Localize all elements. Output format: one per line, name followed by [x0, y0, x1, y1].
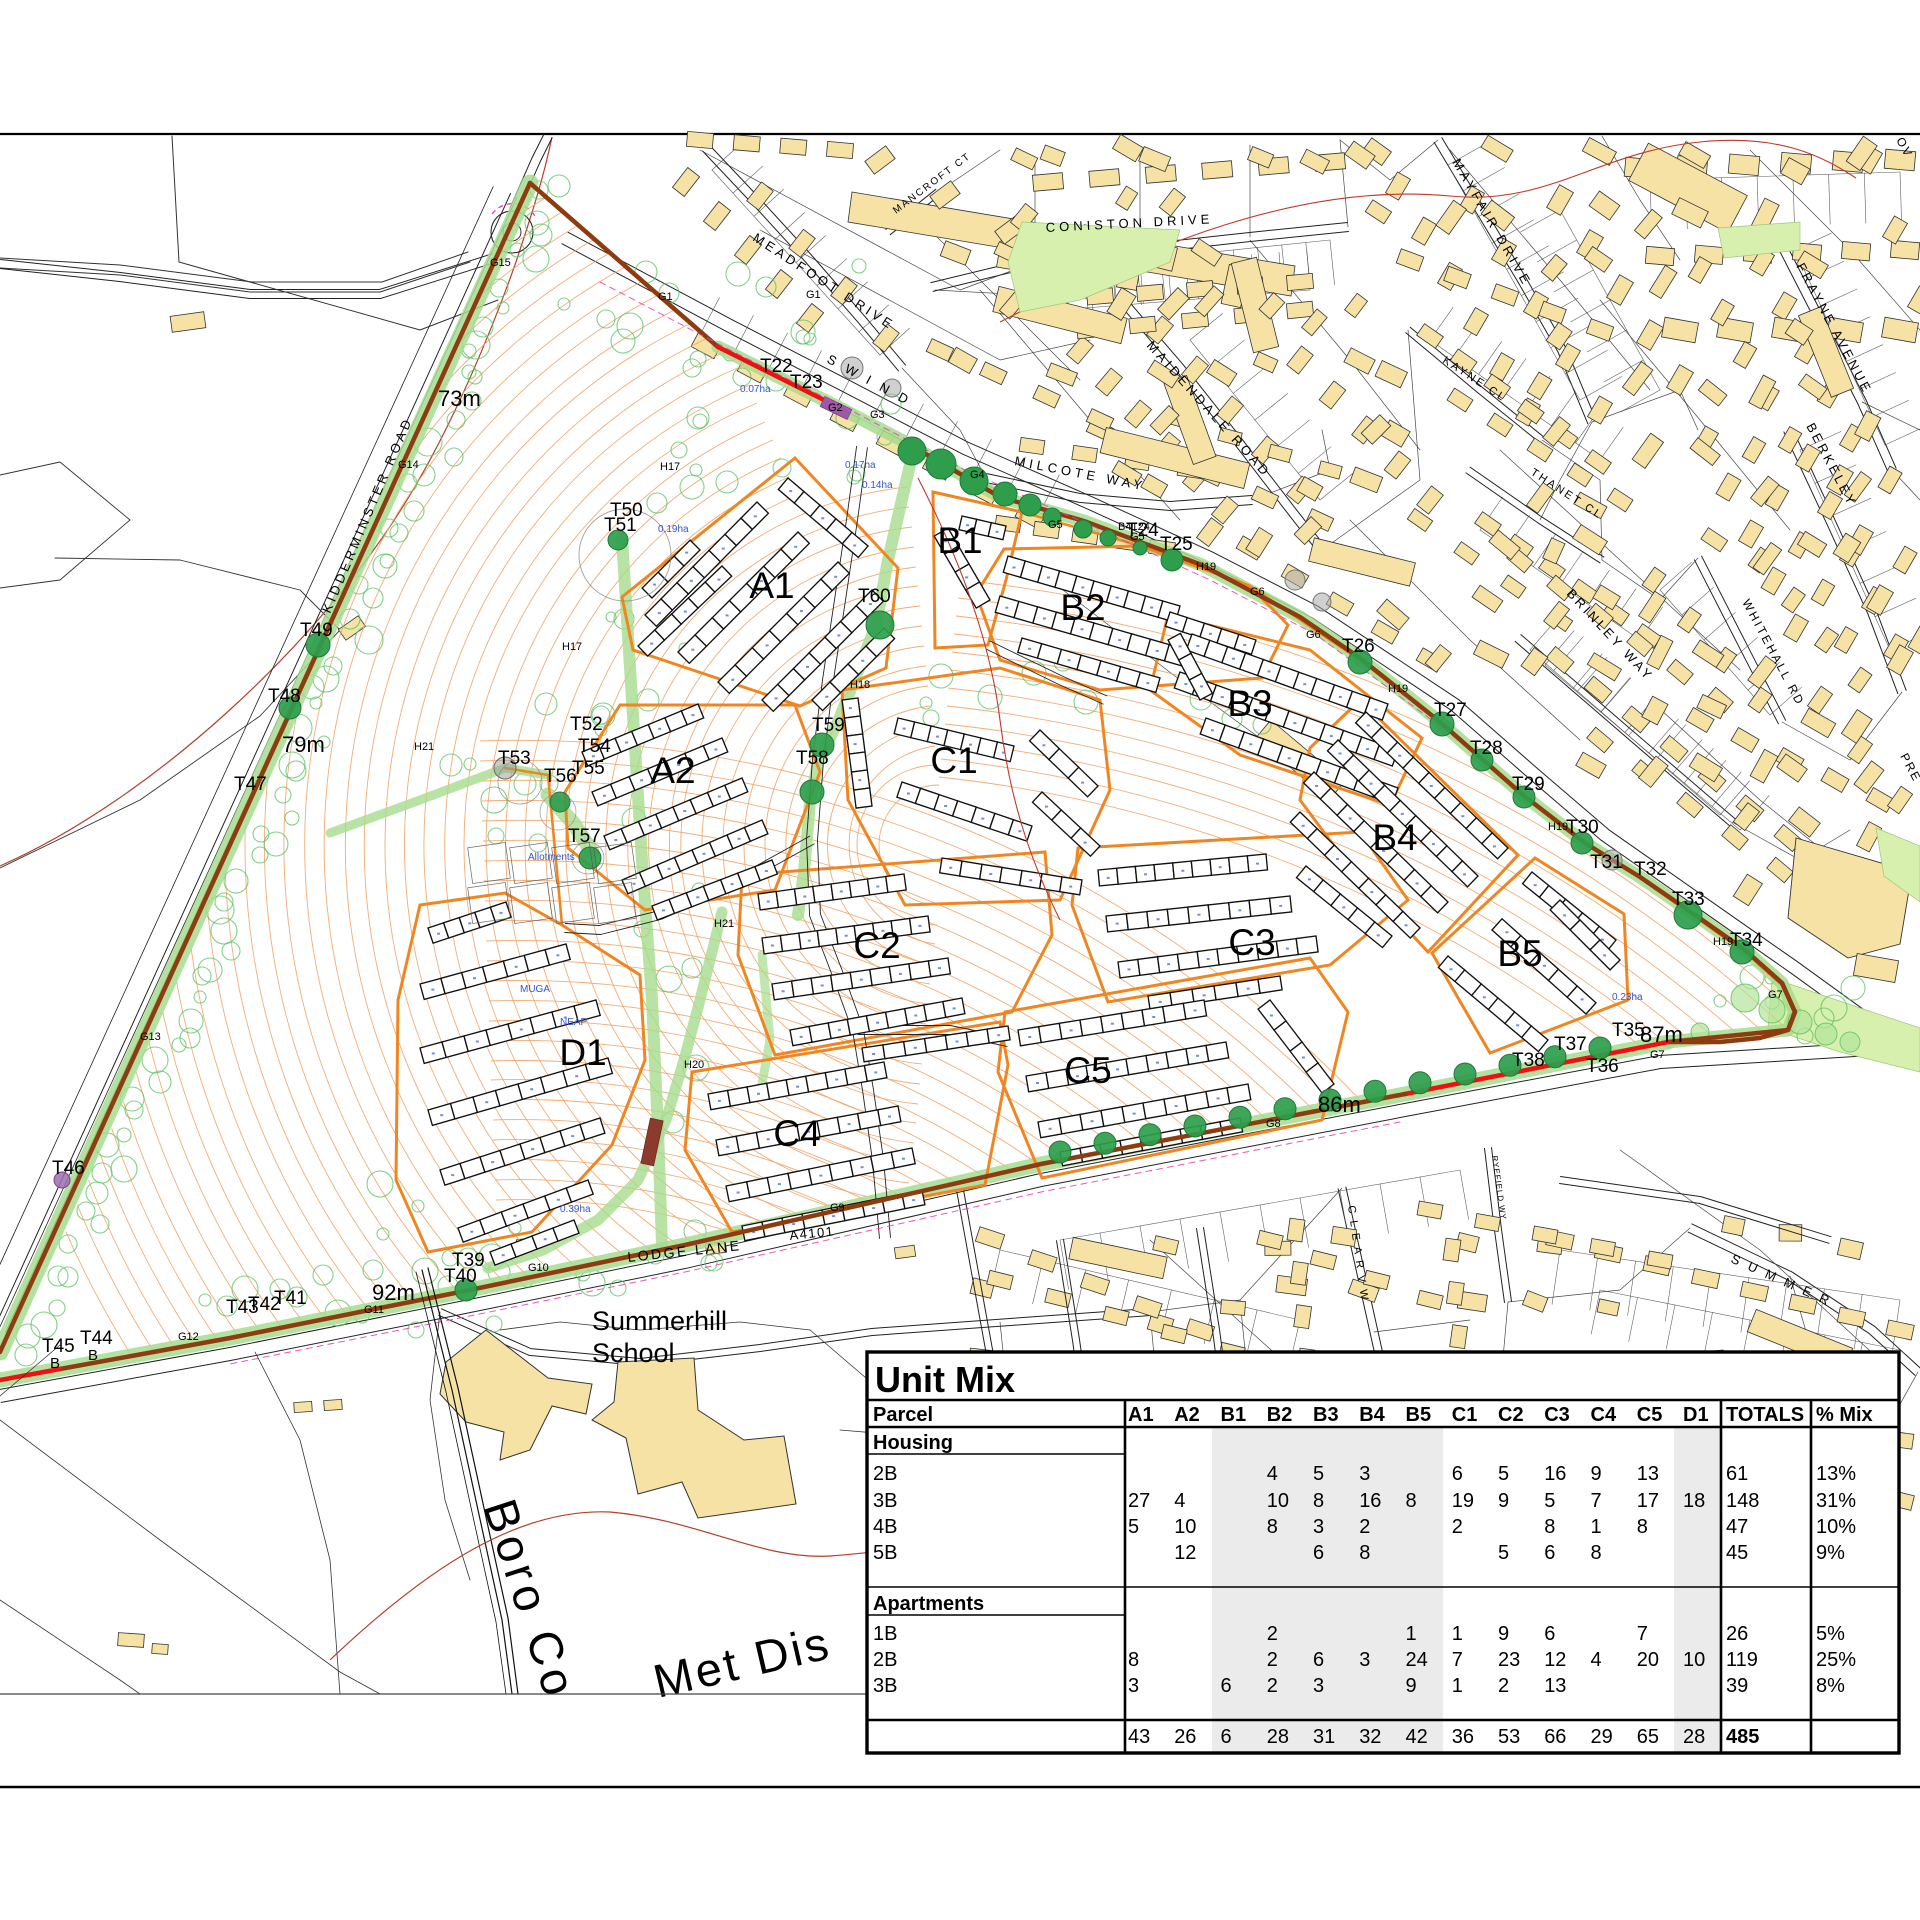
svg-text:C4: C4	[773, 1113, 820, 1154]
svg-text:6: 6	[1313, 1542, 1324, 1564]
svg-text:B1: B1	[937, 520, 982, 561]
svg-text:5%: 5%	[1816, 1623, 1845, 1645]
svg-text:12: 12	[1174, 1542, 1196, 1564]
svg-text:8: 8	[1406, 1490, 1417, 1512]
svg-text:0.14ha: 0.14ha	[862, 480, 893, 491]
svg-text:G7: G7	[1650, 1049, 1665, 1061]
svg-text:T51: T51	[604, 515, 637, 536]
svg-text:% Mix: % Mix	[1816, 1404, 1873, 1426]
svg-text:Parcel: Parcel	[873, 1404, 933, 1426]
svg-text:H17: H17	[562, 641, 582, 653]
svg-text:H20: H20	[684, 1059, 704, 1071]
svg-text:7: 7	[1452, 1649, 1463, 1671]
svg-text:T52: T52	[570, 714, 603, 735]
svg-text:G14: G14	[398, 459, 419, 471]
svg-text:T46: T46	[52, 1158, 85, 1179]
svg-text:4B: 4B	[873, 1516, 897, 1538]
svg-text:A1: A1	[1128, 1404, 1154, 1426]
svg-text:G4: G4	[970, 469, 985, 481]
svg-text:C1: C1	[1452, 1404, 1478, 1426]
svg-text:28: 28	[1267, 1726, 1289, 1748]
svg-text:1: 1	[1452, 1675, 1463, 1697]
svg-text:10: 10	[1174, 1516, 1196, 1538]
svg-text:20: 20	[1637, 1649, 1659, 1671]
svg-text:T45: T45	[42, 1336, 75, 1357]
svg-text:148: 148	[1726, 1490, 1759, 1512]
svg-text:0.19ha: 0.19ha	[658, 524, 689, 535]
svg-text:6: 6	[1452, 1463, 1463, 1485]
svg-text:D1: D1	[559, 1032, 606, 1073]
svg-text:27: 27	[1128, 1490, 1150, 1512]
svg-text:T55: T55	[572, 758, 605, 779]
svg-text:Apartments: Apartments	[873, 1593, 984, 1615]
svg-text:B2: B2	[1267, 1404, 1293, 1426]
svg-text:9: 9	[1591, 1463, 1602, 1485]
svg-text:A2: A2	[1174, 1404, 1200, 1426]
svg-text:8: 8	[1359, 1542, 1370, 1564]
svg-text:29: 29	[1591, 1726, 1613, 1748]
svg-text:6: 6	[1544, 1542, 1555, 1564]
svg-text:T56: T56	[544, 766, 577, 787]
svg-text:G2: G2	[828, 402, 843, 414]
svg-text:B4124: B4124	[1118, 521, 1150, 533]
svg-text:4: 4	[1174, 1490, 1185, 1512]
svg-text:87m: 87m	[1640, 1022, 1683, 1047]
svg-text:42: 42	[1406, 1726, 1428, 1748]
svg-text:B5: B5	[1497, 933, 1542, 974]
svg-text:C3: C3	[1544, 1404, 1570, 1426]
svg-text:23: 23	[1498, 1649, 1520, 1671]
svg-text:H19: H19	[1713, 936, 1733, 948]
svg-text:T35: T35	[1612, 1020, 1645, 1041]
svg-text:8%: 8%	[1816, 1675, 1845, 1697]
svg-text:5: 5	[1544, 1490, 1555, 1512]
svg-text:5: 5	[1313, 1463, 1324, 1485]
svg-text:0.23ha: 0.23ha	[1612, 992, 1643, 1003]
svg-text:B3: B3	[1313, 1404, 1339, 1426]
svg-text:G8: G8	[1266, 1118, 1281, 1130]
svg-text:1: 1	[1591, 1516, 1602, 1538]
svg-text:T36: T36	[1586, 1056, 1619, 1077]
svg-text:26: 26	[1174, 1726, 1196, 1748]
svg-text:A2: A2	[650, 750, 695, 791]
svg-text:0.39ha: 0.39ha	[560, 1204, 591, 1215]
svg-text:H19: H19	[1548, 821, 1568, 833]
svg-text:2B: 2B	[873, 1463, 897, 1485]
svg-text:3B: 3B	[873, 1490, 897, 1512]
svg-text:9%: 9%	[1816, 1542, 1845, 1564]
svg-text:T44: T44	[80, 1328, 113, 1349]
svg-text:86m: 86m	[1318, 1092, 1361, 1117]
svg-text:39: 39	[1726, 1675, 1748, 1697]
svg-text:26: 26	[1726, 1623, 1748, 1645]
svg-text:92m: 92m	[372, 1280, 415, 1305]
svg-text:8: 8	[1313, 1490, 1324, 1512]
svg-text:13%: 13%	[1816, 1463, 1856, 1485]
svg-text:53: 53	[1498, 1726, 1520, 1748]
svg-text:C5: C5	[1064, 1050, 1111, 1091]
svg-text:Housing: Housing	[873, 1432, 953, 1454]
svg-text:5: 5	[1128, 1516, 1139, 1538]
svg-text:G10: G10	[528, 1262, 549, 1274]
svg-text:T40: T40	[444, 1266, 477, 1287]
svg-text:6: 6	[1221, 1675, 1232, 1697]
svg-text:T49: T49	[300, 620, 333, 641]
svg-text:T26: T26	[1342, 636, 1375, 657]
svg-text:7: 7	[1591, 1490, 1602, 1512]
svg-text:G7: G7	[1768, 989, 1783, 1001]
svg-text:3: 3	[1359, 1463, 1370, 1485]
svg-text:10: 10	[1683, 1649, 1705, 1671]
svg-text:8: 8	[1544, 1516, 1555, 1538]
svg-text:9: 9	[1498, 1490, 1509, 1512]
svg-text:T57: T57	[568, 826, 601, 847]
svg-text:12: 12	[1544, 1649, 1566, 1671]
svg-text:485: 485	[1726, 1726, 1759, 1748]
svg-text:2: 2	[1498, 1675, 1509, 1697]
svg-text:45: 45	[1726, 1542, 1748, 1564]
svg-text:16: 16	[1359, 1490, 1381, 1512]
svg-text:6: 6	[1221, 1726, 1232, 1748]
svg-text:T32: T32	[1634, 859, 1667, 880]
svg-text:H17: H17	[660, 461, 680, 473]
svg-text:2: 2	[1267, 1623, 1278, 1645]
svg-text:G12: G12	[178, 1331, 199, 1343]
svg-text:19: 19	[1452, 1490, 1474, 1512]
svg-text:T30: T30	[1566, 817, 1599, 838]
svg-text:G15: G15	[490, 257, 511, 269]
svg-text:H19: H19	[1196, 561, 1216, 573]
svg-text:0.17ha: 0.17ha	[845, 460, 876, 471]
svg-text:A1: A1	[749, 565, 794, 606]
svg-text:31: 31	[1313, 1726, 1335, 1748]
svg-text:T60: T60	[858, 586, 891, 607]
svg-text:2B: 2B	[873, 1649, 897, 1671]
svg-text:2: 2	[1267, 1649, 1278, 1671]
svg-text:D1: D1	[1683, 1404, 1709, 1426]
svg-text:4: 4	[1267, 1463, 1278, 1485]
svg-text:G1: G1	[806, 289, 821, 301]
svg-text:T38: T38	[1512, 1050, 1545, 1071]
svg-text:T43: T43	[226, 1297, 259, 1318]
svg-text:18: 18	[1683, 1490, 1705, 1512]
svg-text:H19: H19	[1388, 683, 1408, 695]
svg-text:47: 47	[1726, 1516, 1748, 1538]
svg-text:H21: H21	[714, 918, 734, 930]
svg-text:65: 65	[1637, 1726, 1659, 1748]
svg-text:T22: T22	[760, 356, 793, 377]
svg-text:T25: T25	[1160, 534, 1193, 555]
svg-text:T37: T37	[1554, 1034, 1587, 1055]
svg-text:T53: T53	[498, 748, 531, 769]
svg-text:MUGA: MUGA	[520, 984, 550, 995]
svg-text:T58: T58	[796, 748, 829, 769]
svg-text:School: School	[592, 1338, 675, 1368]
svg-text:2: 2	[1452, 1516, 1463, 1538]
svg-text:3: 3	[1313, 1675, 1324, 1697]
svg-text:6: 6	[1544, 1623, 1555, 1645]
svg-text:73m: 73m	[438, 386, 481, 411]
svg-text:G3: G3	[870, 409, 885, 421]
svg-text:4: 4	[1591, 1649, 1602, 1671]
svg-text:G6: G6	[1306, 629, 1321, 641]
svg-text:13: 13	[1637, 1463, 1659, 1485]
svg-text:G6: G6	[1250, 586, 1265, 598]
svg-text:28: 28	[1683, 1726, 1705, 1748]
svg-text:119: 119	[1726, 1649, 1758, 1671]
svg-text:8: 8	[1637, 1516, 1648, 1538]
svg-text:H18: H18	[850, 679, 870, 691]
svg-text:66: 66	[1544, 1726, 1566, 1748]
svg-text:25%: 25%	[1816, 1649, 1856, 1671]
svg-text:9: 9	[1498, 1623, 1509, 1645]
svg-text:10: 10	[1267, 1490, 1289, 1512]
svg-text:2: 2	[1267, 1675, 1278, 1697]
svg-text:T29: T29	[1512, 774, 1545, 795]
svg-text:1: 1	[1452, 1623, 1463, 1645]
svg-text:T23: T23	[790, 372, 823, 393]
svg-text:B3: B3	[1227, 683, 1272, 724]
svg-text:C5: C5	[1637, 1404, 1663, 1426]
svg-text:3: 3	[1128, 1675, 1139, 1697]
svg-text:T31: T31	[1590, 852, 1623, 873]
svg-text:T54: T54	[578, 736, 611, 757]
svg-text:61: 61	[1726, 1463, 1748, 1485]
svg-text:C1: C1	[930, 740, 977, 781]
svg-text:Allotments: Allotments	[528, 852, 575, 863]
svg-text:TOTALS: TOTALS	[1726, 1404, 1804, 1426]
svg-text:B4: B4	[1372, 817, 1417, 858]
svg-text:1B: 1B	[873, 1623, 897, 1645]
svg-text:10%: 10%	[1816, 1516, 1856, 1538]
svg-text:16: 16	[1544, 1463, 1566, 1485]
svg-text:B: B	[50, 1355, 60, 1372]
svg-text:T48: T48	[268, 686, 301, 707]
svg-text:7: 7	[1637, 1623, 1648, 1645]
svg-text:5: 5	[1498, 1542, 1509, 1564]
svg-text:8: 8	[1267, 1516, 1278, 1538]
svg-text:3: 3	[1359, 1649, 1370, 1671]
svg-text:Summerhill: Summerhill	[592, 1306, 727, 1336]
svg-text:5: 5	[1498, 1463, 1509, 1485]
svg-text:24: 24	[1406, 1649, 1428, 1671]
svg-text:9: 9	[1406, 1675, 1417, 1697]
svg-text:0.07ha: 0.07ha	[740, 384, 771, 395]
svg-text:31%: 31%	[1816, 1490, 1856, 1512]
svg-text:G13: G13	[140, 1031, 161, 1043]
svg-text:T59: T59	[812, 715, 845, 736]
svg-text:H21: H21	[414, 741, 434, 753]
svg-text:T28: T28	[1470, 738, 1503, 759]
svg-text:3B: 3B	[873, 1675, 897, 1697]
svg-text:C4: C4	[1591, 1404, 1617, 1426]
svg-text:T47: T47	[234, 774, 267, 795]
svg-text:36: 36	[1452, 1726, 1474, 1748]
svg-text:B: B	[88, 1347, 98, 1364]
svg-text:C2: C2	[853, 925, 900, 966]
svg-text:G11: G11	[364, 1304, 384, 1316]
svg-text:T34: T34	[1730, 930, 1763, 951]
svg-text:32: 32	[1359, 1726, 1381, 1748]
svg-text:Unit Mix: Unit Mix	[875, 1359, 1015, 1400]
svg-text:3: 3	[1313, 1516, 1324, 1538]
svg-text:G9: G9	[830, 1202, 845, 1214]
svg-text:B5: B5	[1406, 1404, 1432, 1426]
svg-text:G1: G1	[658, 291, 673, 303]
svg-text:5B: 5B	[873, 1542, 897, 1564]
svg-text:C3: C3	[1228, 922, 1275, 963]
svg-text:B4: B4	[1359, 1404, 1385, 1426]
svg-text:13: 13	[1544, 1675, 1566, 1697]
svg-text:NEAP: NEAP	[560, 1017, 588, 1028]
svg-text:B1: B1	[1221, 1404, 1247, 1426]
svg-text:G5: G5	[1048, 519, 1063, 531]
svg-text:6: 6	[1313, 1649, 1324, 1671]
svg-text:2: 2	[1359, 1516, 1370, 1538]
svg-text:8: 8	[1128, 1649, 1139, 1671]
svg-text:17: 17	[1637, 1490, 1659, 1512]
svg-text:B2: B2	[1060, 587, 1105, 628]
svg-text:79m: 79m	[282, 732, 325, 757]
svg-text:43: 43	[1128, 1726, 1150, 1748]
svg-text:1: 1	[1406, 1623, 1417, 1645]
svg-text:8: 8	[1591, 1542, 1602, 1564]
svg-text:T33: T33	[1672, 889, 1705, 910]
svg-text:C2: C2	[1498, 1404, 1524, 1426]
svg-text:T27: T27	[1434, 700, 1467, 721]
